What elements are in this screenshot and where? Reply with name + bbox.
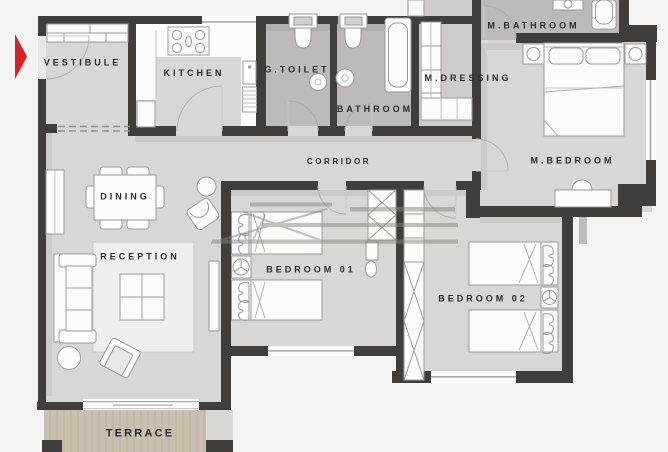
svg-text:BEDROOM 02: BEDROOM 02 <box>438 294 528 304</box>
svg-text:TERRACE: TERRACE <box>106 428 175 440</box>
svg-text:KITCHEN: KITCHEN <box>164 68 225 78</box>
svg-text:M.BEDROOM: M.BEDROOM <box>531 156 615 166</box>
svg-text:M.DRESSING: M.DRESSING <box>424 73 511 83</box>
svg-text:CORRIDOR: CORRIDOR <box>307 157 371 166</box>
svg-text:M.BATHROOM: M.BATHROOM <box>487 21 579 31</box>
svg-text:VESTIBULE: VESTIBULE <box>44 58 122 68</box>
svg-text:BATHROOM: BATHROOM <box>337 104 413 114</box>
svg-text:DINING: DINING <box>100 192 150 202</box>
svg-text:G.TOILET: G.TOILET <box>264 65 329 75</box>
svg-text:BEDROOM 01: BEDROOM 01 <box>266 265 356 275</box>
svg-text:RECEPTION: RECEPTION <box>100 252 180 262</box>
